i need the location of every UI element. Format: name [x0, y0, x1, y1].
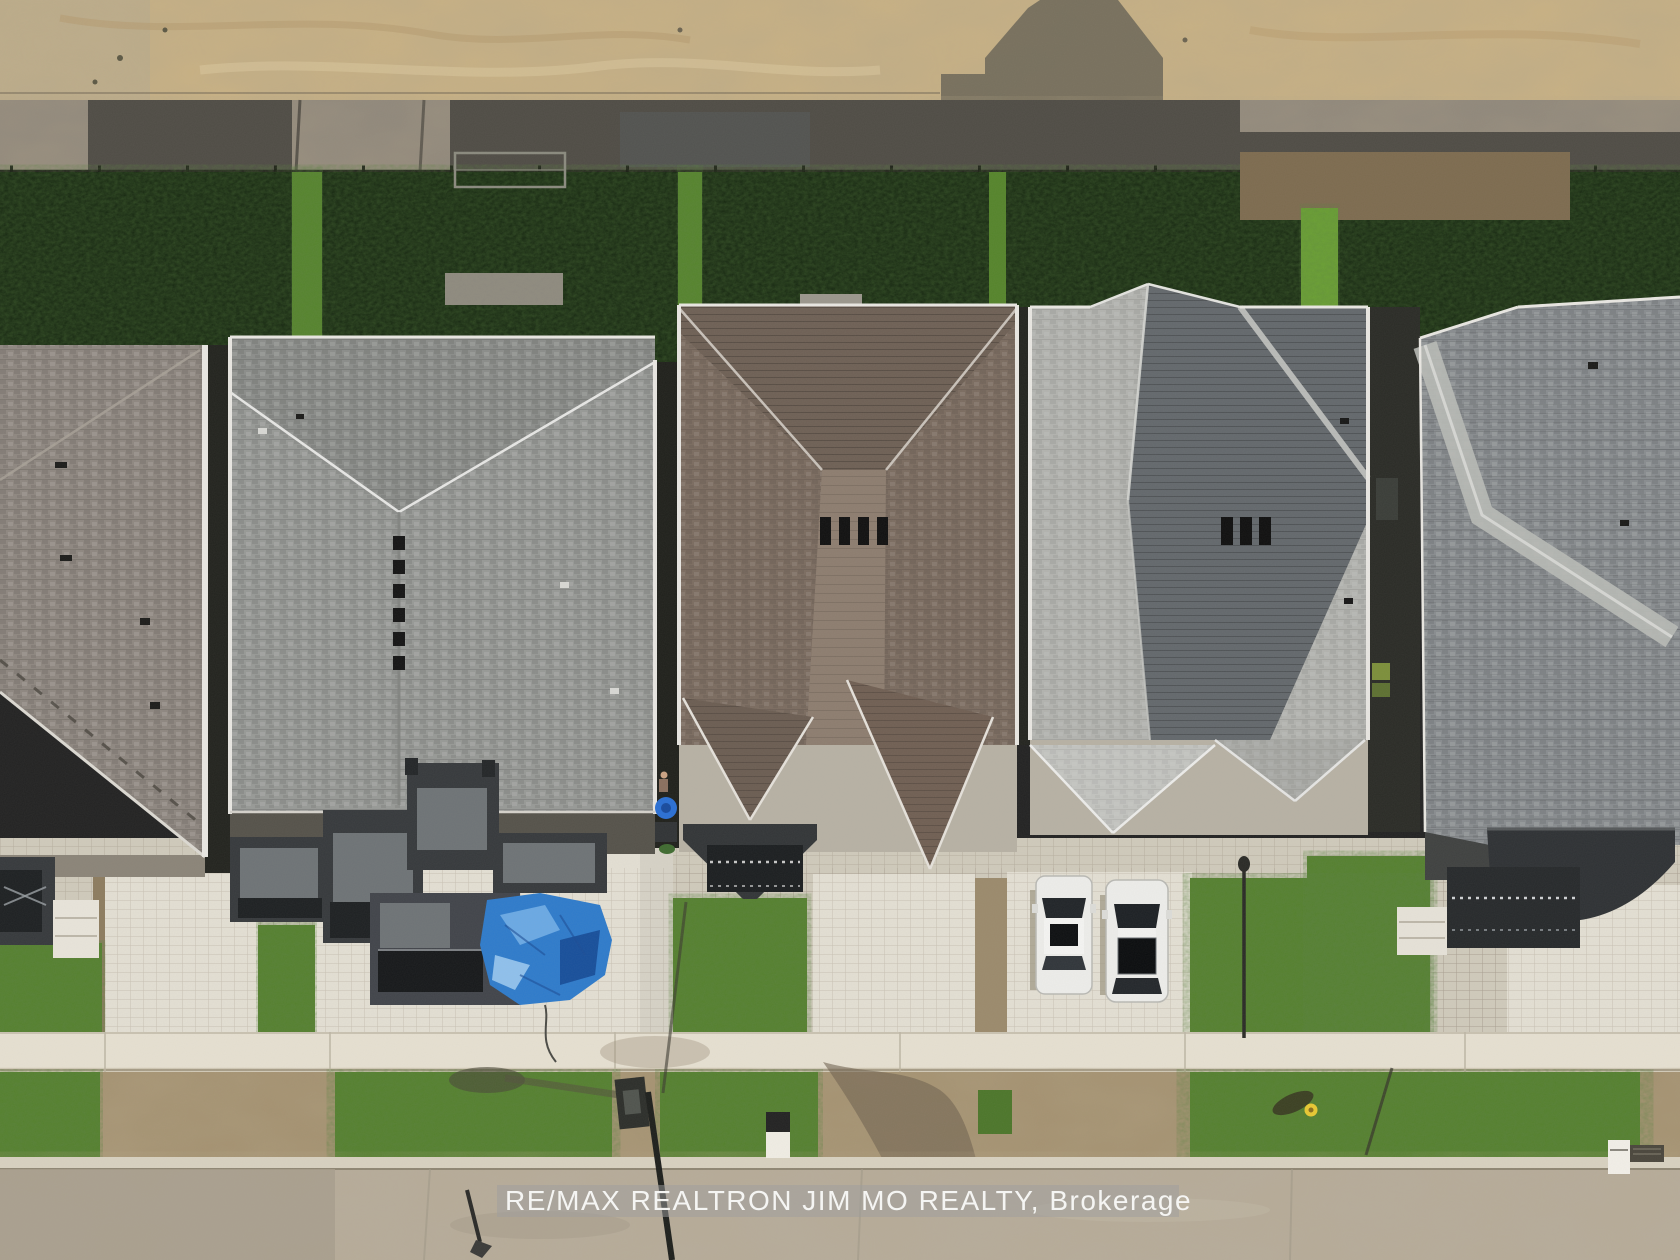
aerial-photo: RE/MAX REALTRON JIM MO REALTY, Brokerage	[0, 0, 1680, 1260]
watermark-text: RE/MAX REALTRON JIM MO REALTY, Brokerage	[505, 1185, 1192, 1216]
film-grain-overlay	[0, 0, 1680, 1260]
watermark: RE/MAX REALTRON JIM MO REALTY, Brokerage	[497, 1185, 1192, 1217]
